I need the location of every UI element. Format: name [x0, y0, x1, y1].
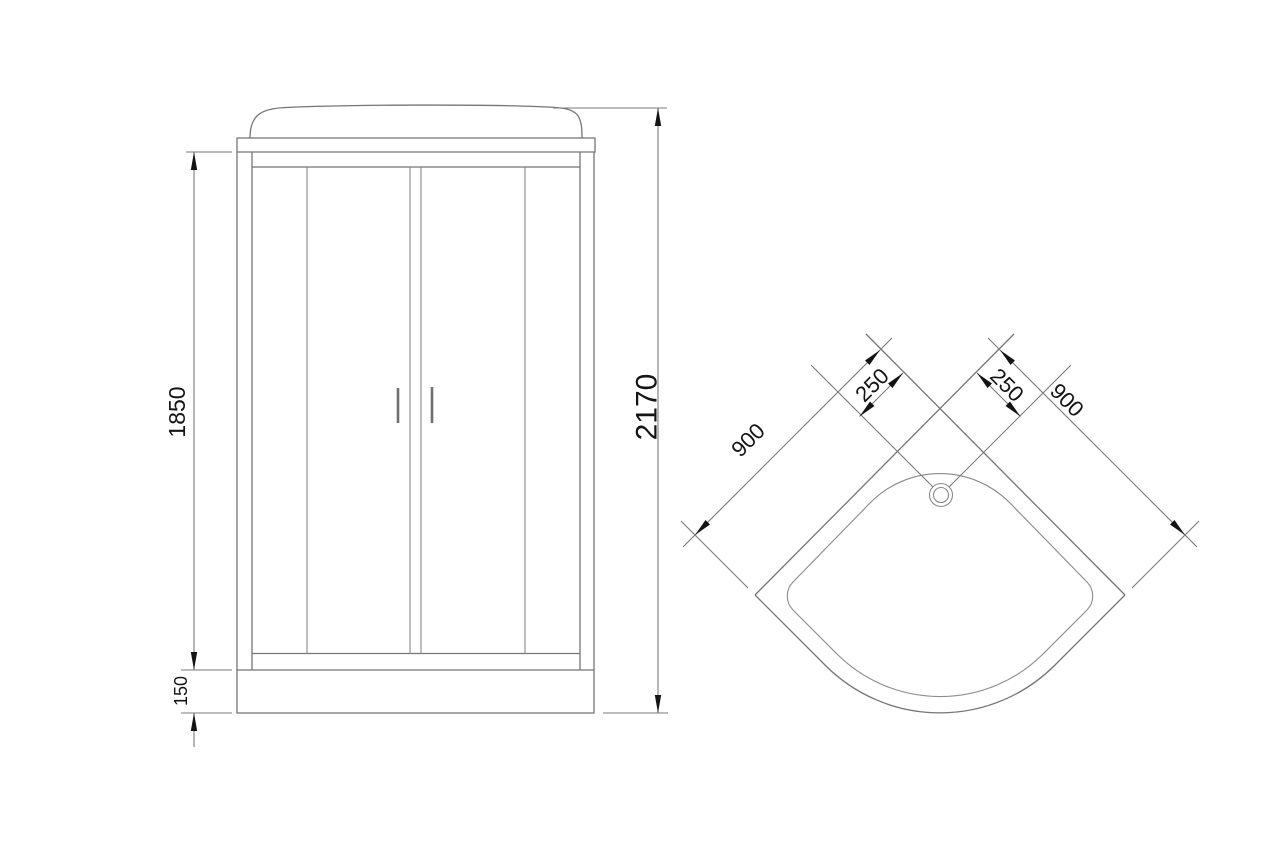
- frame-profiles: [237, 152, 594, 670]
- dimension-label-150: 150: [171, 676, 191, 706]
- arrowhead-150-bottom: [191, 713, 197, 731]
- front-elevation-dimensions: 1850 150 2170: [164, 108, 668, 747]
- dimension-line-900-right: [988, 338, 1197, 547]
- dimension-label-1850: 1850: [164, 386, 190, 437]
- roof-outline: [250, 105, 582, 138]
- tray-outer-front: [755, 595, 1125, 713]
- dimension-label-250-right: 250: [985, 363, 1029, 407]
- arrowhead-2170-top: [655, 108, 661, 126]
- front-elevation-view: [237, 105, 595, 713]
- arrowhead-1850-top: [191, 152, 197, 170]
- tray-base: [237, 670, 594, 713]
- tray-inner-outline: [787, 474, 1092, 697]
- plan-view-dimensions: 900 900 250 250: [681, 338, 1199, 588]
- tray-back-edges: [755, 334, 1125, 595]
- arrowhead-1850-bottom: [191, 652, 197, 670]
- technical-drawing-canvas: 1850 150 2170 900 9: [0, 0, 1280, 853]
- drain-locating-lines: [811, 365, 1071, 487]
- dimension-label-250-left: 250: [850, 363, 894, 407]
- arrowhead-900-left-bottom: [695, 520, 710, 535]
- header-bar: [237, 138, 595, 152]
- arrowhead-900-left-top: [865, 350, 880, 365]
- glass-panel-dividers: [307, 167, 525, 654]
- glass-rails: [252, 167, 580, 654]
- door-handles: [398, 387, 432, 423]
- arrowhead-2170-bottom: [655, 695, 661, 713]
- arrowhead-900-right-bottom: [1170, 520, 1185, 535]
- drain-inner-circle: [934, 488, 949, 503]
- extension-lines-front: [181, 108, 668, 713]
- corner-extension-lines: [681, 521, 1199, 588]
- dimension-line-900-left: [683, 338, 892, 547]
- dimension-label-900-left: 900: [726, 418, 770, 462]
- dimension-label-2170: 2170: [631, 374, 664, 441]
- shower-cabin-drawing: 1850 150 2170 900 9: [0, 0, 1280, 853]
